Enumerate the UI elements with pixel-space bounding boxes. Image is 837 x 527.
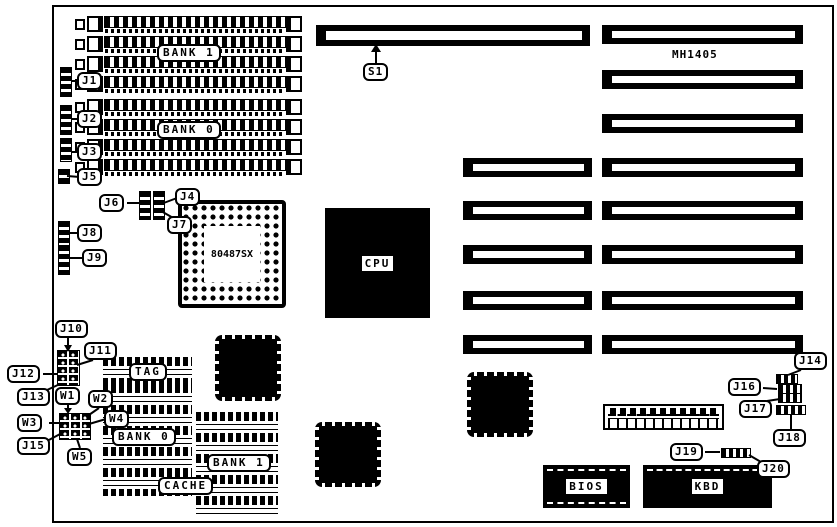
expansion-slot	[602, 114, 803, 133]
motherboard-diagram: BANK 1 BANK 0 MH1405 80487SX CPU TAG BAN…	[0, 0, 837, 527]
simm-socket	[75, 16, 303, 33]
callout-j18: J18	[773, 429, 806, 447]
kbd-label: KBD	[692, 479, 724, 494]
callout-j2: J2	[77, 110, 102, 128]
callout-j8: J8	[77, 224, 102, 242]
cache-bank0-label: BANK 0	[112, 428, 176, 446]
expansion-slot	[602, 25, 803, 44]
simm-socket	[75, 159, 303, 176]
expansion-slot	[463, 245, 592, 264]
jumper-j8	[58, 221, 70, 248]
jumper-j19-j20	[721, 448, 751, 458]
simm-socket	[75, 99, 303, 116]
callout-j12: J12	[7, 365, 40, 383]
power-connector	[603, 404, 724, 430]
jumper-j3	[60, 138, 72, 162]
qfp-chip	[315, 422, 381, 487]
jumper-j4-j7	[153, 191, 165, 220]
jumper-j2	[60, 105, 72, 135]
callout-j11: J11	[84, 342, 117, 360]
callout-s1: S1	[363, 63, 388, 81]
callout-w2: W2	[88, 390, 113, 408]
callout-j10: J10	[55, 320, 88, 338]
callout-j9: J9	[82, 249, 107, 267]
simm-bank0-label: BANK 0	[157, 121, 221, 139]
cpu-label: CPU	[362, 256, 394, 271]
callout-j7: J7	[167, 216, 192, 234]
board-part-number: MH1405	[672, 48, 718, 61]
jumper-block-j10-j13	[57, 350, 80, 386]
callout-j1: J1	[77, 72, 102, 90]
callout-j19: J19	[670, 443, 703, 461]
expansion-slot	[602, 158, 803, 177]
callout-j17: J17	[739, 400, 772, 418]
expansion-slot	[463, 201, 592, 220]
jumper-block-w1-w5	[59, 413, 91, 440]
callout-j14: J14	[794, 352, 827, 370]
callout-j3: J3	[77, 143, 102, 161]
expansion-slot	[316, 25, 590, 46]
jumper-j14	[776, 374, 798, 384]
expansion-slot	[602, 335, 803, 354]
simm-socket	[75, 76, 303, 93]
expansion-slot	[602, 245, 803, 264]
bios-chip: BIOS	[543, 465, 630, 508]
callout-j15: J15	[17, 437, 50, 455]
expansion-slot	[602, 291, 803, 310]
coprocessor-label: 80487SX	[211, 249, 253, 260]
callout-w3: W3	[17, 414, 42, 432]
callout-j13: J13	[17, 388, 50, 406]
expansion-slot	[602, 201, 803, 220]
callout-w1: W1	[55, 387, 80, 405]
cpu-chip: CPU	[325, 208, 430, 318]
callout-j6: J6	[99, 194, 124, 212]
bios-label: BIOS	[566, 479, 607, 494]
jumper-j1	[60, 67, 72, 97]
callout-j4: J4	[175, 188, 200, 206]
jumper-j5	[58, 169, 70, 184]
callout-j16: J16	[728, 378, 761, 396]
expansion-slot	[463, 335, 592, 354]
coprocessor-socket: 80487SX	[178, 200, 286, 308]
callout-j20: J20	[757, 460, 790, 478]
jumper-j9	[58, 245, 70, 275]
callout-w5: W5	[67, 448, 92, 466]
keyboard-controller-chip: KBD	[643, 465, 772, 508]
tag-label: TAG	[129, 363, 167, 381]
simm-bank1-label: BANK 1	[157, 44, 221, 62]
expansion-slot	[463, 158, 592, 177]
qfp-chip	[467, 372, 533, 437]
jumper-j18	[776, 405, 806, 415]
simm-socket	[75, 139, 303, 156]
cache-label: CACHE	[158, 477, 213, 495]
expansion-slot	[602, 70, 803, 89]
callout-j5: J5	[77, 168, 102, 186]
jumper-j17	[778, 393, 802, 403]
qfp-chip	[215, 335, 281, 401]
jumper-j6	[139, 191, 151, 220]
cache-bank1-label: BANK 1	[207, 454, 271, 472]
expansion-slot	[463, 291, 592, 310]
callout-w4: W4	[104, 410, 129, 428]
